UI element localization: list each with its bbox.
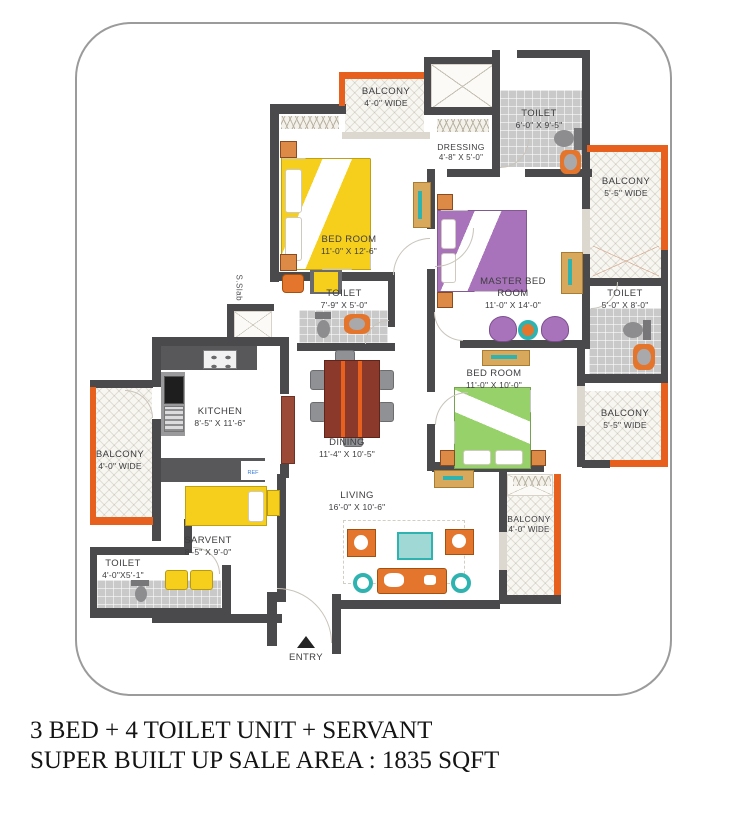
room-dims: 6'-0" X 9'-5": [497, 120, 581, 131]
wall: [447, 169, 497, 177]
window: [513, 476, 551, 486]
room-name: BED ROOM: [444, 368, 544, 380]
wall: [152, 337, 289, 346]
caption-line-2: SUPER BUILT UP SALE AREA : 1835 SQFT: [30, 746, 499, 776]
console-icon: [434, 470, 474, 488]
armchair-icon: [541, 316, 569, 342]
sofa-icon: [377, 568, 447, 594]
room-name: TOILET: [91, 558, 155, 570]
pillow: [248, 491, 264, 522]
wall: [582, 169, 590, 209]
room-label-kitchen: KITCHEN 8'-5" X 11'-6": [177, 406, 263, 429]
nightstand-icon: [437, 292, 453, 308]
room-label-balcony-left: BALCONY 4'-0" WIDE: [91, 449, 149, 472]
stool-icon: [190, 570, 213, 590]
wc-icon: [317, 320, 330, 338]
room-name: DINING: [297, 437, 397, 449]
kitchen-door: [281, 396, 295, 464]
balcony-accent-wall: [587, 145, 668, 152]
room-label-balcony-bottom: BALCONY 4'-0" WIDE: [501, 514, 557, 535]
armchair-icon: [445, 529, 474, 555]
basin-icon: [633, 344, 655, 370]
wall: [332, 594, 341, 654]
floor-plan-page: REF: [0, 0, 746, 822]
room-label-toilet-top-right: TOILET 6'-0" X 9'-5": [497, 108, 581, 131]
room-name: DRESSING: [429, 142, 493, 153]
room-dims: 4'-0"X5'-1": [91, 570, 155, 581]
room-dims: 7'-9" X 5'-0": [299, 300, 389, 311]
room-dims: 8'-5" X 11'-6": [177, 418, 263, 429]
armchair-icon: [347, 529, 376, 557]
room-name: KITCHEN: [177, 406, 263, 418]
wall: [427, 340, 435, 392]
balcony-accent-wall: [554, 474, 561, 600]
window: [342, 132, 430, 139]
wardrobe-icon: [437, 119, 489, 132]
wall: [499, 595, 561, 604]
wall: [388, 272, 395, 327]
pillow: [285, 169, 302, 213]
room-name: BALCONY: [91, 449, 149, 461]
center-table-icon: [397, 532, 433, 560]
wc-icon: [315, 312, 331, 319]
room-name: TOILET: [587, 288, 663, 300]
side-table-icon: [353, 573, 373, 593]
wall: [332, 600, 500, 609]
wall: [152, 614, 282, 623]
stove-icon: [203, 350, 237, 369]
room-label-toilet-right: TOILET 5'-0" X 8'-0": [587, 288, 663, 311]
room-name: LIVING: [307, 490, 407, 502]
wc-icon: [135, 586, 147, 602]
nightstand-icon: [280, 141, 297, 158]
room-label-bedroom1: BED ROOM 11'-0" X 12'-6": [299, 234, 399, 257]
stool-icon: [165, 570, 188, 590]
wall: [424, 107, 500, 115]
room-label-dressing: DRESSING 4'-8" X 5'-0": [429, 142, 493, 163]
window: [582, 209, 590, 254]
fridge-icon: REF: [241, 461, 265, 480]
nightstand-icon: [440, 450, 455, 466]
door-arc: [435, 392, 468, 425]
chair-icon: [378, 370, 394, 390]
room-label-bedroom3: BED ROOM 11'-0" X 10'-0": [444, 368, 544, 391]
armchair-icon: [489, 316, 517, 342]
entry-arrow-icon: [297, 636, 315, 648]
round-table-icon: [518, 320, 538, 340]
wall: [152, 337, 161, 387]
wall: [280, 464, 289, 478]
slab-label: S.Slab: [235, 275, 244, 319]
room-name: BALCONY: [501, 514, 557, 525]
wall: [582, 374, 668, 383]
wall: [517, 50, 590, 58]
wall: [270, 104, 346, 114]
room-dims: 4'-0" WIDE: [501, 525, 557, 535]
window: [577, 386, 585, 426]
caption-line-1: 3 BED + 4 TOILET UNIT + SERVANT: [30, 716, 499, 746]
wall: [661, 250, 668, 385]
room-label-balcony-right-top: BALCONY 5'-5" WIDE: [594, 176, 658, 199]
room-name: TOILET: [497, 108, 581, 120]
bed-icon: [185, 486, 267, 526]
balcony-accent-wall: [607, 460, 668, 467]
wall: [582, 460, 610, 468]
nightstand-icon: [437, 194, 453, 210]
room-dims: 5'-5" WIDE: [589, 420, 661, 431]
shaft-top: [431, 64, 494, 109]
wall: [270, 104, 279, 282]
wc-icon: [554, 130, 574, 147]
wall: [582, 50, 590, 177]
room-dims: 8'-5" X 9'-0": [162, 547, 254, 558]
window: [499, 532, 507, 570]
pillow: [495, 450, 523, 465]
room-dims: 11'-0" X 10'-0": [444, 380, 544, 391]
room-label-toilet-mid: TOILET 7'-9" X 5'-0": [299, 288, 389, 311]
room-label-servant: SARVENT 8'-5" X 9'-0": [162, 535, 254, 558]
table-icon: [267, 490, 280, 516]
balcony-accent-wall: [339, 72, 431, 79]
balcony-accent-wall: [90, 517, 153, 525]
dresser-icon: [561, 252, 583, 294]
entry-label: ENTRY: [279, 652, 333, 664]
room-dims: 16'-0" X 10'-6": [307, 502, 407, 513]
room-label-toilet-bottom-left: TOILET 4'-0"X5'-1": [91, 558, 155, 581]
room-dims: 4'-8" X 5'-0": [429, 153, 493, 163]
wall: [427, 269, 435, 348]
wc-icon: [643, 320, 651, 340]
basin-icon: [344, 314, 370, 334]
caption: 3 BED + 4 TOILET UNIT + SERVANT SUPER BU…: [30, 716, 499, 776]
room-name: BALCONY: [594, 176, 658, 188]
room-label-living: LIVING 16'-0" X 10'-6": [307, 490, 407, 513]
balcony-bottom-floor: [507, 481, 554, 595]
room-label-balcony-right-low: BALCONY 5'-5" WIDE: [589, 408, 661, 431]
room-dims: 4'-0" WIDE: [91, 461, 149, 472]
room-label-dining: DINING 11'-4" X 10'-5": [297, 437, 397, 460]
tv-console-icon: [413, 182, 431, 228]
room-dims: 11'-4" X 10'-5": [297, 449, 397, 460]
balcony-accent-wall: [661, 145, 668, 252]
side-table-icon: [451, 573, 471, 593]
wardrobe-icon: [281, 116, 339, 129]
wall: [152, 419, 161, 541]
room-dims: 4'-0" WIDE: [339, 98, 433, 109]
balcony-x-mark: [593, 246, 659, 276]
basin-icon: [560, 150, 581, 174]
room-name: BED ROOM: [299, 234, 399, 246]
pillow: [463, 450, 491, 465]
room-label-master-bedroom: MASTER BED ROOM 11'-0" X 14'-0": [475, 276, 551, 311]
door-arc: [277, 588, 332, 643]
wall: [90, 380, 153, 388]
sink-icon: [164, 376, 184, 404]
door-arc: [434, 312, 463, 341]
room-dims: 5'-5" WIDE: [594, 188, 658, 199]
entry-text: ENTRY: [279, 652, 333, 664]
room-name: SARVENT: [162, 535, 254, 547]
dresser-icon: [482, 350, 530, 366]
chair-icon: [378, 402, 394, 422]
room-name: TOILET: [299, 288, 389, 300]
wc-icon: [623, 322, 643, 338]
wall: [424, 57, 500, 64]
room-dims: 11'-0" X 12'-6": [299, 246, 399, 257]
dining-table-icon: [324, 360, 380, 438]
floor-plan-card: REF: [75, 22, 672, 696]
room-name: MASTER BED ROOM: [475, 276, 551, 300]
room-dims: 11'-0" X 14'-0": [475, 300, 551, 311]
room-name: BALCONY: [589, 408, 661, 420]
room-dims: 5'-0" X 8'-0": [587, 300, 663, 311]
wall: [460, 340, 585, 348]
balcony-accent-wall: [661, 383, 668, 467]
room-label-balcony-top: BALCONY 4'-0" WIDE: [339, 86, 433, 109]
fridge-label: REF: [248, 470, 259, 476]
floor-plan: REF: [77, 24, 670, 694]
nightstand-icon: [531, 450, 546, 466]
nightstand-icon: [280, 254, 297, 271]
wc-icon: [574, 128, 582, 150]
room-name: BALCONY: [339, 86, 433, 98]
